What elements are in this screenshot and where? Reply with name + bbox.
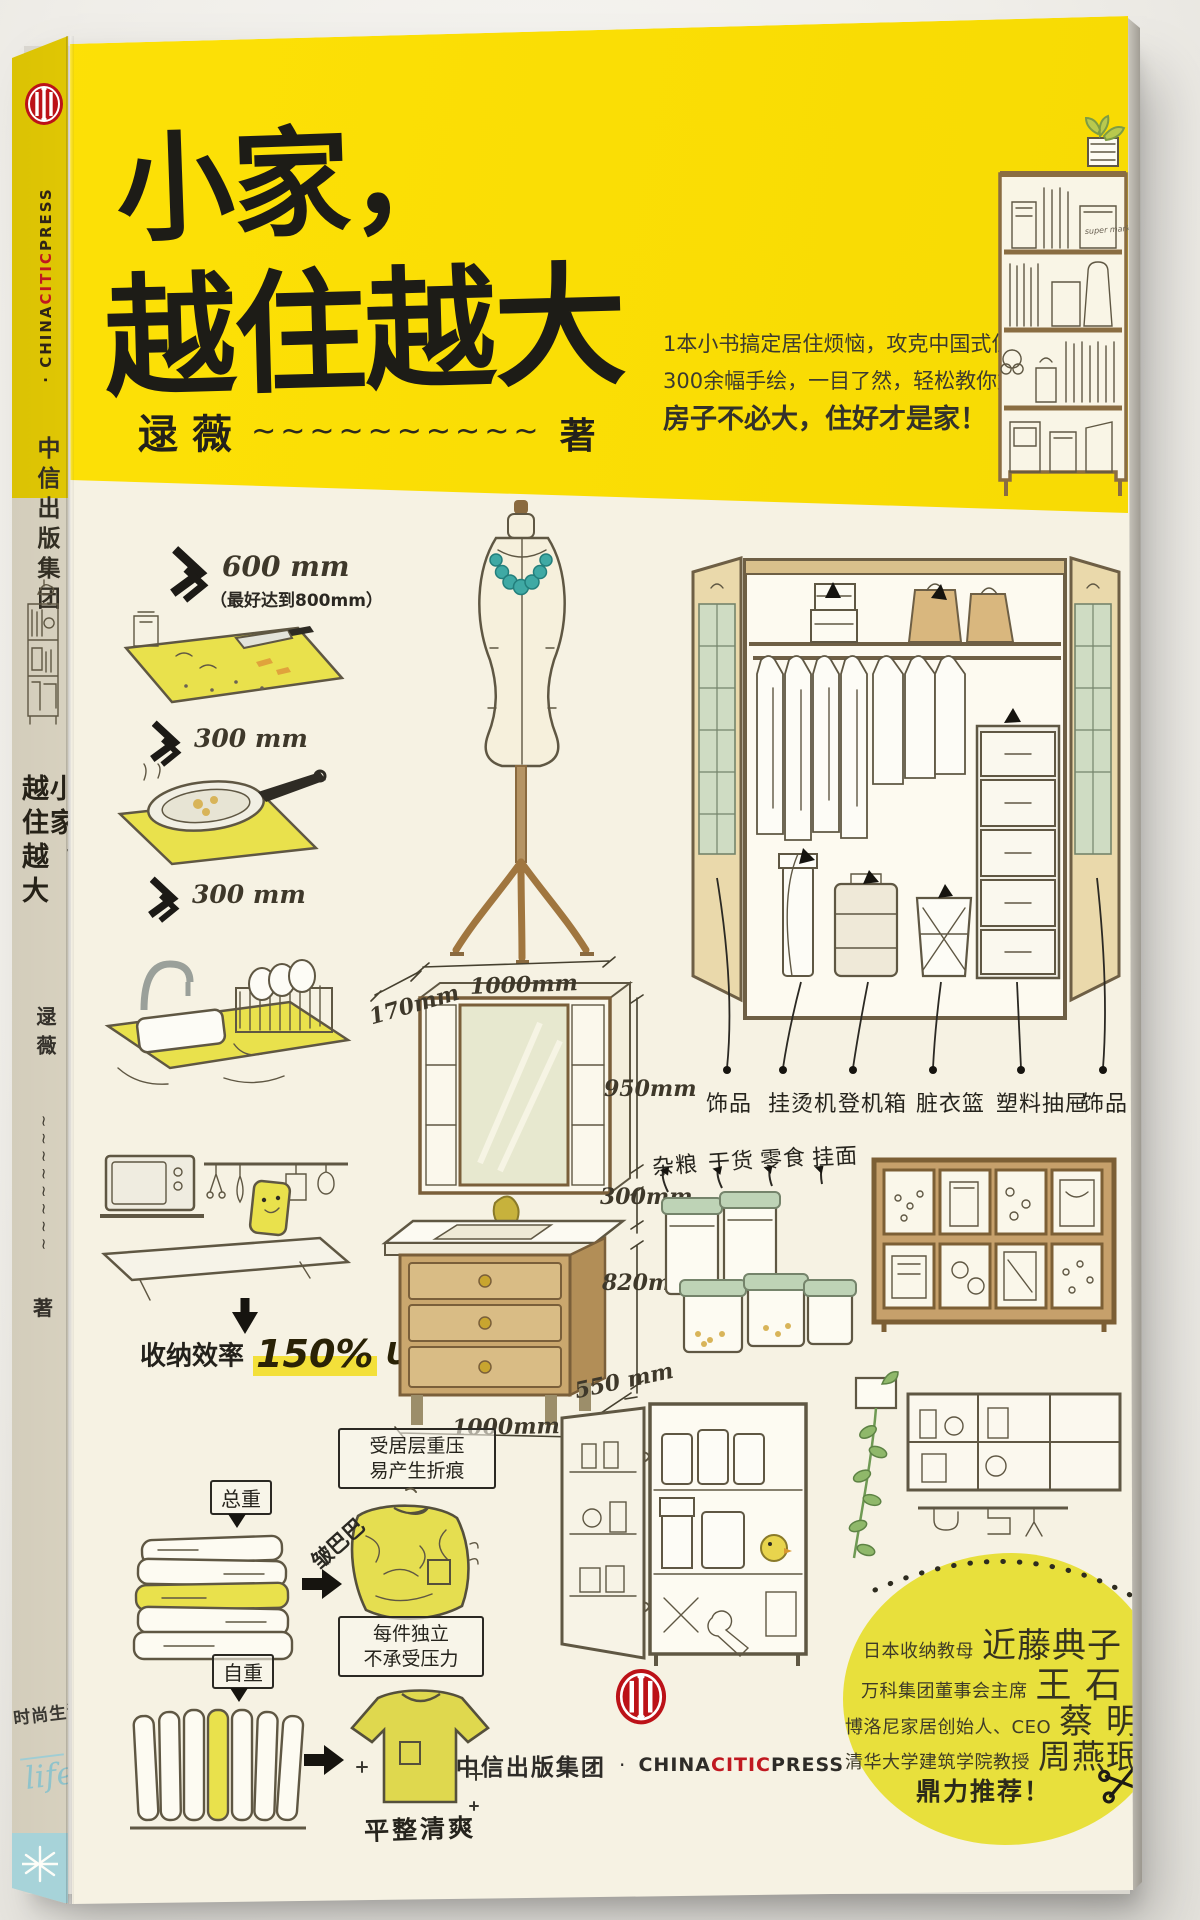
spine-author: 逯薇: [31, 1006, 60, 1064]
mannequin-illustration: [438, 498, 603, 970]
crush-note: 受居层重压 易产生折痕: [338, 1428, 496, 1489]
book-front-cover: 小家， 越住越大 逯薇 ~~~~~~~~~~ 著 1本小书搞定居住烦恼，攻克中国…: [0, 0, 1200, 1920]
efficiency-label: 收纳效率: [140, 1342, 244, 1372]
wardrobe-illustration: [683, 548, 1130, 1088]
independent-note: 每件独立 不承受压力: [338, 1616, 484, 1677]
spine-publisher-en: · CHINACITICPRESS: [37, 135, 55, 435]
prep-zone-dim: 300 mm: [194, 724, 308, 753]
imprint-line: 中信出版集团 · CHINACITICPRESS: [420, 1748, 880, 1782]
efficiency-value: 150%: [253, 1332, 376, 1376]
down-arrow-icon: [228, 1296, 262, 1336]
total-weight-label: 总重: [210, 1480, 272, 1515]
citic-logo-icon: [22, 80, 66, 130]
cover-author-tildes: ~~~~~~~~~~: [251, 414, 542, 449]
vertical-folded-illustration: [126, 1700, 310, 1840]
wardrobe-label-plastic-drawers: 塑料抽屉: [996, 1086, 1088, 1118]
frying-pan-illustration: [114, 762, 338, 874]
pantry-canisters-illustration: [640, 1166, 868, 1358]
cover-tagline-3: 房子不必大，住好才是家！: [663, 397, 987, 436]
total-weight-arrow-icon: [228, 1514, 246, 1528]
book-cover-photo: · CHINACITICPRESS 中信出版集团 越住越大 小家， 逯薇 ~~~…: [0, 0, 1200, 1920]
cover-author-suffix: 著: [560, 416, 596, 457]
wall-rack-illustration: [100, 1142, 352, 1304]
cover-author-row: 逯薇 ~~~~~~~~~~ 著: [138, 402, 596, 460]
wrinkled-shirt-illustration: [336, 1486, 484, 1628]
self-weight-label: 自重: [212, 1654, 274, 1689]
citic-logo-icon: [612, 1664, 670, 1732]
wardrobe-label-laundry-basket: 脏衣篮: [916, 1086, 985, 1118]
sink-dishrack-illustration: [104, 918, 352, 1110]
counter-depth-dim: 600 mm: [222, 550, 349, 583]
cutting-board-illustration: [116, 606, 348, 718]
bookshelf-illustration: super market: [992, 112, 1134, 504]
cubby-shelf-illustration: [868, 1152, 1120, 1337]
spine-imprint-block: [12, 1833, 68, 1903]
medicine-cabinet-illustration: [552, 1382, 814, 1682]
spine-author-tildes: ~~~~~~~~: [35, 1090, 53, 1280]
flat-tshirt-illustration: [344, 1676, 494, 1818]
folded-stack-illustration: [128, 1530, 300, 1664]
recommend-footer: 鼎力推荐！: [845, 1772, 1122, 1808]
tidy-caption: 平整清爽: [363, 1808, 476, 1848]
spine-author-suffix: 著: [33, 1292, 53, 1321]
spine-mini-bookshelf-icon: [20, 578, 66, 730]
arrow-right-icon: [300, 1738, 348, 1782]
cover-author-name: 逯薇: [138, 412, 246, 458]
star-icon: [22, 1841, 58, 1885]
vanity-width-top: 1000mm: [470, 970, 579, 1000]
recommend-row-4: 清华大学建筑学院教授周燕珉: [845, 1730, 1122, 1778]
wardrobe-label-accessories-right: 饰品: [1082, 1086, 1128, 1118]
wardrobe-label-steamer: 挂烫机: [768, 1086, 837, 1118]
wardrobe-label-suitcase: 登机箱: [838, 1086, 907, 1118]
sink-zone-dim: 300 mm: [192, 880, 306, 909]
spine-crease: [66, 36, 74, 1904]
cover-title-line2: 越住越大: [102, 219, 627, 424]
wardrobe-label-accessories-left: 饰品: [706, 1086, 752, 1118]
